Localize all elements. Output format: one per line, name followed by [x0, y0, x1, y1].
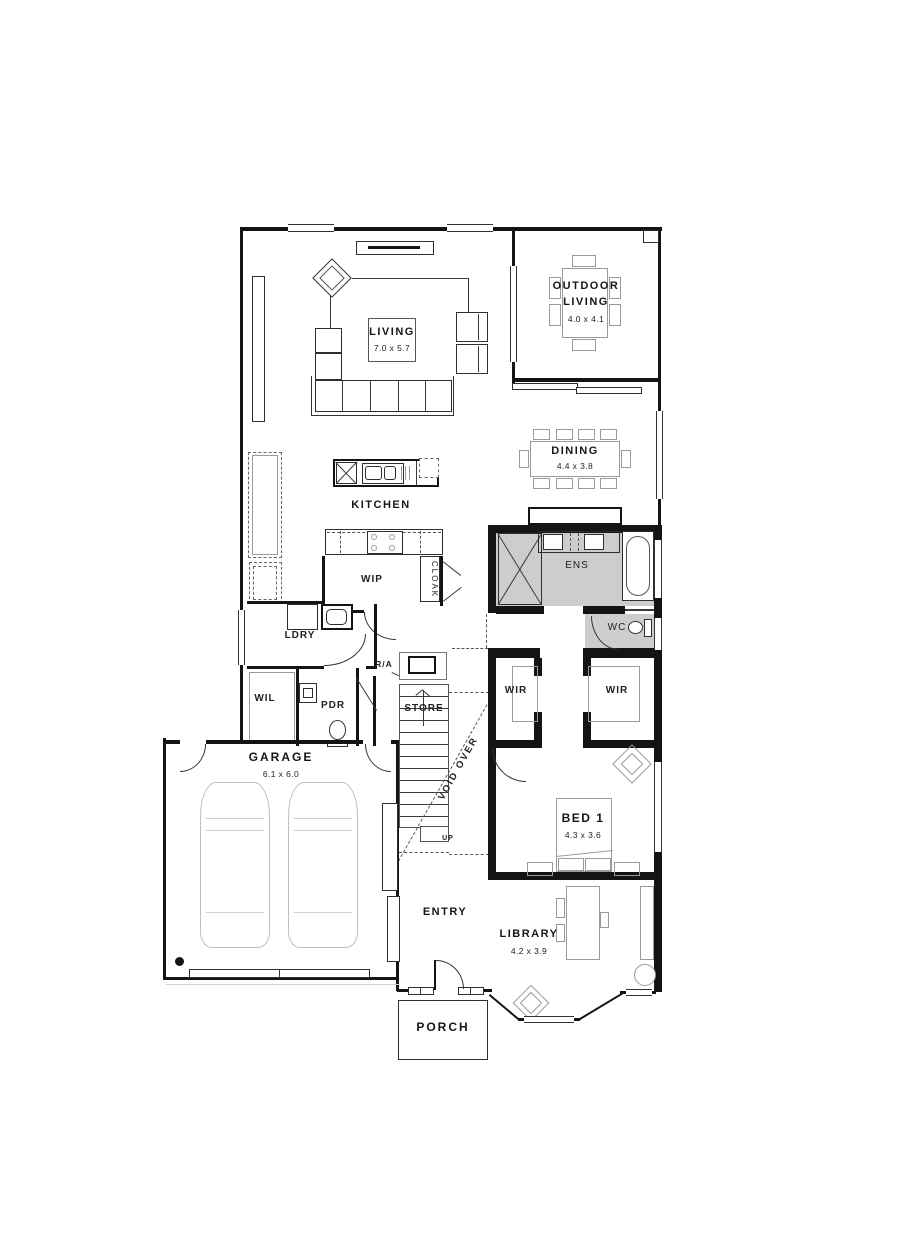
room-label: WIR	[595, 685, 639, 696]
wall-niche	[387, 896, 400, 962]
furniture-line	[352, 278, 468, 279]
room-label: LDRY	[278, 630, 322, 641]
window	[238, 610, 245, 665]
desk-chair	[600, 912, 609, 928]
linen-cupboard-inner	[408, 656, 436, 674]
slab-line	[166, 984, 399, 985]
bathtub-inner	[626, 536, 650, 596]
door-arc	[492, 748, 526, 782]
bench-divider	[416, 461, 417, 485]
dining-chair	[533, 429, 550, 440]
dining-chair	[519, 450, 529, 468]
car-line	[294, 830, 352, 831]
wall	[296, 668, 299, 746]
stair-tread	[400, 768, 448, 769]
wall	[488, 650, 496, 880]
wall	[583, 740, 662, 748]
stair-tread	[400, 756, 448, 757]
dining-chair	[578, 429, 595, 440]
linen-shelf	[249, 672, 295, 742]
wall	[440, 556, 443, 606]
dining-chair	[600, 429, 617, 440]
void-dash	[449, 854, 489, 855]
wall	[163, 740, 180, 744]
room-label: LIVING	[536, 296, 636, 308]
wall	[496, 606, 544, 614]
room-dims: 4.3 x 3.6	[548, 831, 618, 840]
wall	[206, 740, 363, 744]
burner	[389, 545, 395, 551]
fridge-cabinet-inner	[252, 455, 278, 555]
window	[654, 540, 662, 598]
stair-tread	[400, 804, 448, 805]
stairs-up-label: UP	[440, 835, 456, 843]
wall	[642, 378, 661, 382]
room-label: LIBRARY	[494, 928, 564, 940]
vanity-dash	[578, 533, 579, 551]
wall	[654, 650, 662, 762]
car-line	[206, 818, 264, 819]
void-dash	[486, 614, 487, 648]
stair-tread	[400, 780, 448, 781]
void-dash	[399, 852, 449, 853]
desk-chair	[556, 898, 565, 918]
car	[200, 782, 270, 948]
window	[626, 989, 652, 996]
toilet-bowl	[329, 720, 346, 740]
plant	[634, 964, 656, 986]
appliance-cabinet-inner	[253, 566, 277, 600]
room-label: LIVING	[368, 326, 416, 338]
wall	[163, 738, 166, 980]
sink-bowl	[384, 466, 396, 480]
stair-tread	[400, 720, 448, 721]
room-label: ENS	[553, 560, 601, 571]
toilet-bowl	[628, 621, 643, 634]
armchair-line	[478, 314, 479, 340]
vanity-basin	[543, 534, 563, 550]
room-label: DINING	[530, 445, 620, 457]
desk	[566, 886, 600, 960]
car	[288, 782, 358, 948]
room-dims: 4.2 x 3.9	[494, 947, 564, 956]
dining-chair	[600, 478, 617, 489]
toilet-tank	[644, 619, 652, 637]
wall	[488, 525, 496, 613]
burner	[389, 534, 395, 540]
sink-drainer	[409, 466, 410, 480]
window	[656, 411, 663, 499]
wall	[654, 852, 662, 880]
sink-drainer	[405, 466, 406, 480]
sidelight-window	[408, 987, 434, 995]
wall	[240, 228, 243, 744]
car-line	[294, 912, 352, 913]
meter-point	[175, 957, 184, 966]
sidelight-line	[420, 988, 421, 994]
library-chair-inner	[520, 992, 543, 1015]
door-arc	[365, 744, 391, 772]
pillow	[585, 858, 611, 871]
side-cabinet	[252, 276, 265, 422]
wall-line	[625, 609, 655, 611]
corner-table-inner	[319, 265, 344, 290]
bench-dash	[420, 531, 421, 553]
sink-drainer	[401, 466, 402, 480]
room-label: R/A	[372, 660, 396, 669]
dining-chair	[556, 429, 573, 440]
wall	[488, 740, 542, 748]
floor-plan: OUTDOOR LIVING 4.0 x 4.1 LIVING 7.0 x 5.…	[0, 0, 901, 1246]
dining-chair	[533, 478, 550, 489]
wall	[654, 525, 662, 540]
door-arc	[324, 634, 366, 666]
room-label: ENTRY	[420, 906, 470, 918]
window	[447, 224, 493, 232]
room-dims: 6.1 x 6.0	[246, 770, 316, 779]
window	[288, 224, 334, 232]
stair-tread	[400, 732, 448, 733]
door-arc	[180, 744, 206, 772]
wall	[247, 666, 324, 669]
post	[643, 230, 659, 243]
room-label: WIR	[496, 685, 536, 696]
window	[654, 618, 662, 650]
furniture-line	[330, 296, 331, 328]
room-dims: 4.4 x 3.8	[530, 462, 620, 471]
wall	[583, 606, 625, 614]
dining-chair	[556, 478, 573, 489]
trough-bowl	[326, 609, 347, 625]
tv	[368, 246, 420, 249]
utility-cupboard	[382, 803, 398, 891]
pillow	[558, 858, 584, 871]
bookshelf	[640, 886, 654, 960]
furniture-line	[468, 278, 469, 315]
room-label: WC	[603, 622, 631, 633]
room-label: KITCHEN	[351, 499, 411, 511]
wall	[488, 648, 540, 658]
bifold-door	[443, 587, 462, 602]
window	[654, 762, 662, 852]
bedroom-chair	[612, 744, 652, 784]
garage-door-divider	[279, 969, 280, 978]
burner	[371, 545, 377, 551]
car-line	[206, 912, 264, 913]
room-label: GARAGE	[246, 751, 316, 764]
room-label: PDR	[311, 700, 355, 711]
window	[510, 266, 517, 362]
window	[524, 1016, 574, 1023]
sofa-outline	[311, 376, 454, 416]
dining-chair	[578, 478, 595, 489]
bay-wall-diagonal	[578, 992, 624, 1020]
sidelight-line	[470, 988, 471, 994]
room-label: WIP	[350, 574, 394, 585]
sideboard	[528, 507, 622, 525]
sink-bowl	[365, 466, 382, 480]
stair-tread	[400, 696, 448, 697]
island-end	[419, 458, 439, 478]
pdr-basin-bowl	[303, 688, 313, 698]
room-label: WIL	[243, 693, 287, 704]
void-dash	[449, 692, 489, 693]
wall	[654, 598, 662, 618]
burner	[371, 534, 377, 540]
bedroom-chair-inner	[621, 753, 644, 776]
bench-dash	[340, 531, 341, 553]
room-dims: 7.0 x 5.7	[368, 344, 416, 353]
armchair	[456, 344, 488, 374]
room-dims: 4.0 x 4.1	[536, 315, 636, 324]
room-label: STORE	[400, 703, 448, 714]
armchair	[456, 312, 488, 342]
outdoor-chair	[572, 255, 596, 267]
bedside-table	[614, 862, 640, 876]
void-dash	[452, 648, 488, 649]
stair-tread	[400, 744, 448, 745]
car-line	[294, 818, 352, 819]
door-arc	[364, 612, 396, 640]
bifold-door	[442, 561, 461, 576]
room-label: PORCH	[408, 1021, 478, 1034]
wall	[583, 648, 662, 658]
rug	[368, 318, 416, 362]
washer-space	[287, 604, 318, 630]
room-label: OUTDOOR	[536, 280, 636, 292]
room-label: BED 1	[548, 812, 618, 825]
sliding-door-panel	[576, 387, 642, 394]
dining-chair	[621, 450, 631, 468]
room-label: CLOAK	[422, 560, 438, 600]
sliding-door-panel	[512, 383, 578, 390]
sliding-door-track	[514, 378, 644, 382]
outdoor-chair	[572, 339, 596, 351]
vanity-basin	[584, 534, 604, 550]
wall	[658, 231, 661, 388]
vanity-dash	[570, 533, 571, 551]
armchair-line	[478, 346, 479, 372]
corner-table	[312, 258, 352, 298]
bedside-table	[527, 862, 553, 876]
sofa-cushion	[315, 328, 342, 353]
front-door-arc	[436, 960, 464, 989]
car-line	[206, 830, 264, 831]
